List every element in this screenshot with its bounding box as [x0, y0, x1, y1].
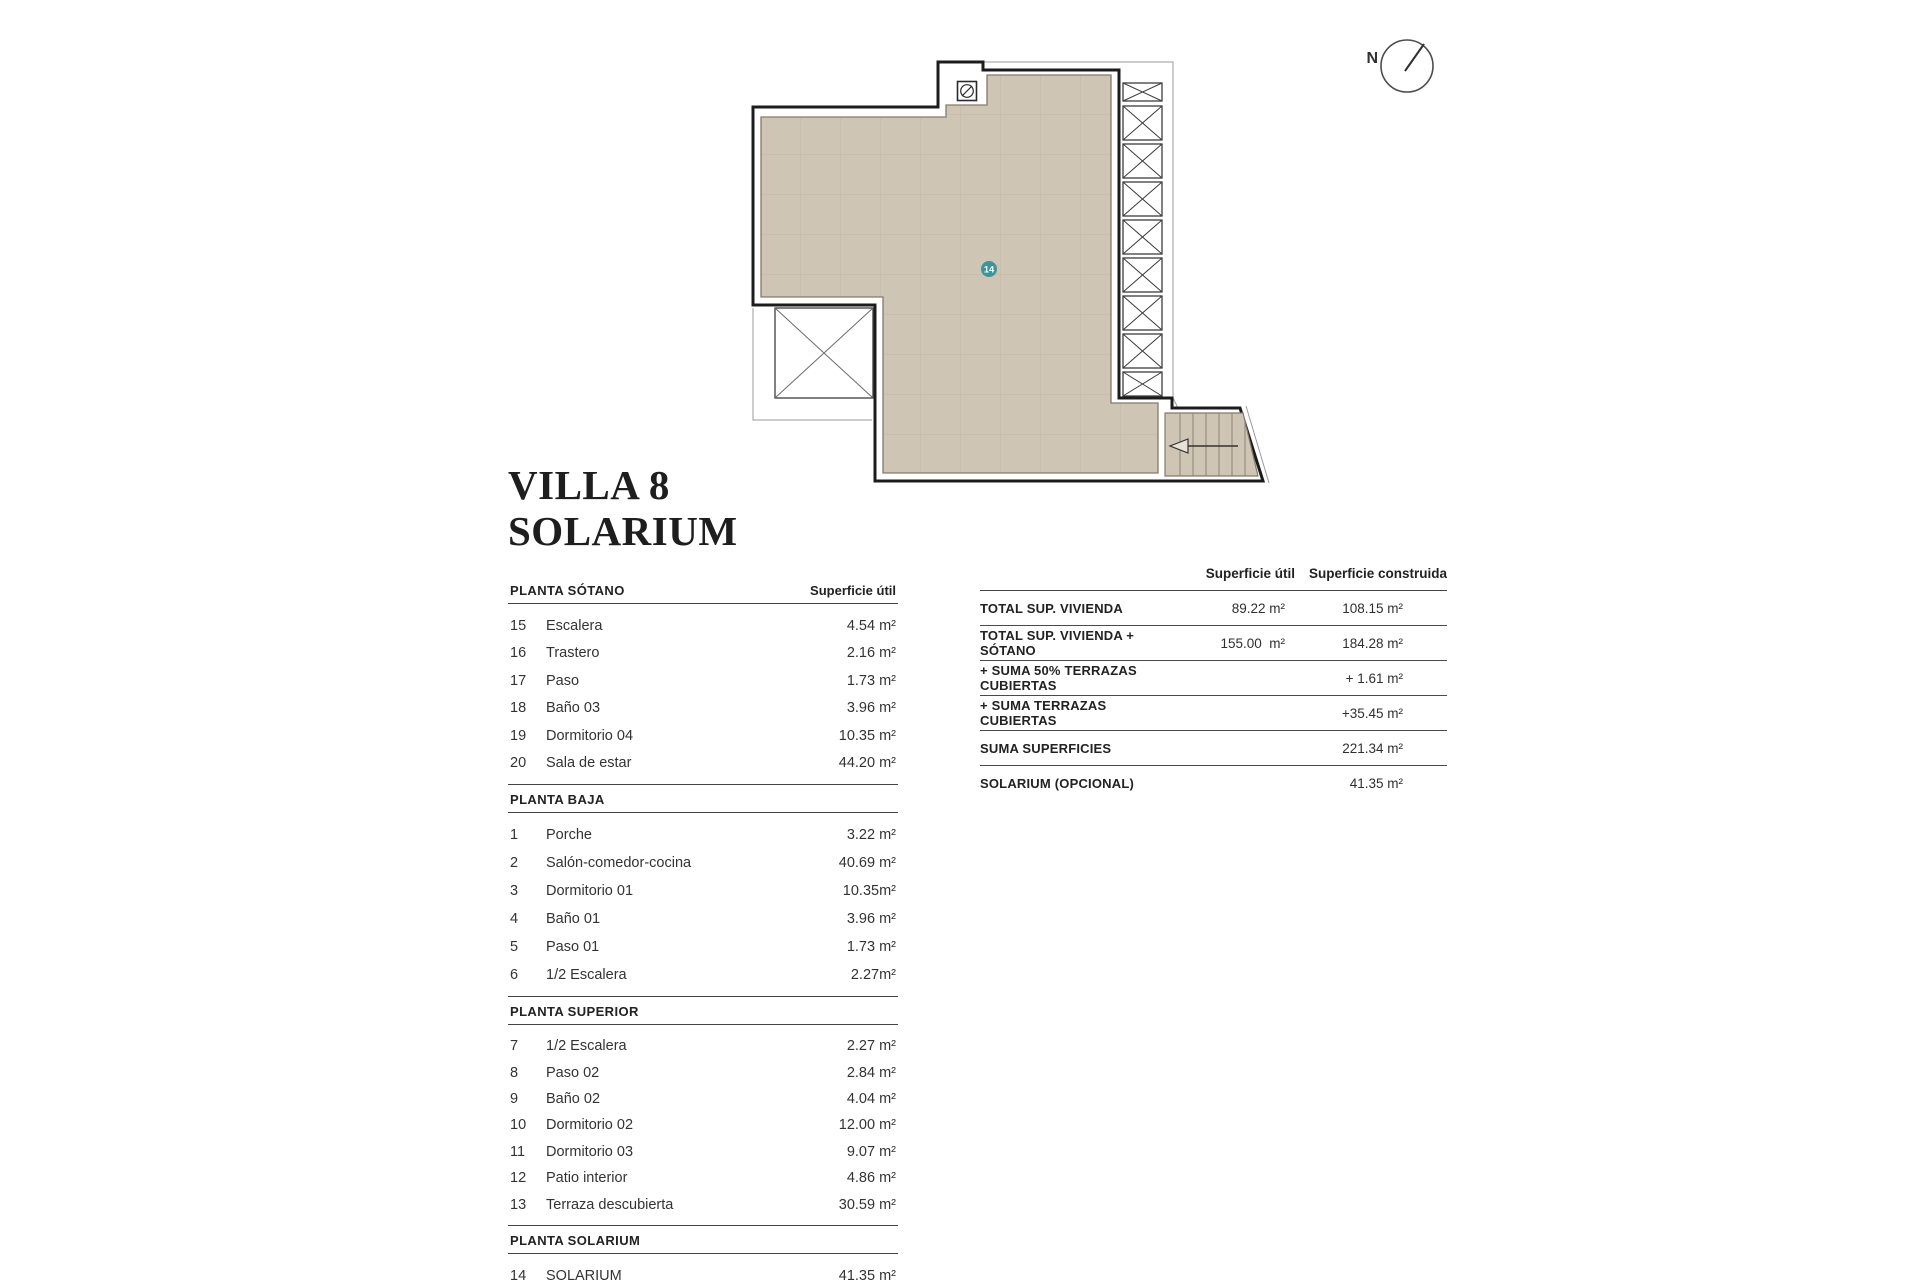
- summary-label: TOTAL SUP. VIVIENDA: [980, 601, 1175, 616]
- room-name: Escalera: [546, 618, 847, 634]
- floor-section: PLANTA BAJA 1 Porche 3.22 m² 2 Salón-com…: [508, 785, 898, 997]
- room-number: 11: [508, 1144, 546, 1160]
- room-name: Dormitorio 04: [546, 728, 839, 744]
- summary-row: SUMA SUPERFICIES 221.34 m²: [980, 731, 1447, 766]
- room-row: 3 Dormitorio 01 10.35m²: [508, 877, 898, 905]
- summary-row: TOTAL SUP. VIVIENDA + SÓTANO 155.00 m² 1…: [980, 626, 1447, 661]
- floor-section-title: PLANTA SOLARIUM: [510, 1233, 640, 1248]
- room-number: 5: [508, 939, 546, 955]
- summary-header-row: Superficie útil Superficie construida: [980, 566, 1447, 591]
- skylight-void: [775, 308, 873, 398]
- room-row: 4 Baño 01 3.96 m²: [508, 905, 898, 933]
- room-name: Terraza descubierta: [546, 1197, 839, 1213]
- room-row: 18 Baño 03 3.96 m²: [508, 695, 898, 723]
- summary-row: + SUMA TERRAZAS CUBIERTAS +35.45 m²: [980, 696, 1447, 731]
- floor-section-title: PLANTA SÓTANO: [510, 583, 625, 598]
- room-number: 17: [508, 673, 546, 689]
- summary-construida-value: +35.45 m²: [1295, 706, 1447, 721]
- room-row: 2 Salón-comedor-cocina 40.69 m²: [508, 849, 898, 877]
- room-row: 12 Patio interior 4.86 m²: [508, 1165, 898, 1191]
- summary-construida-value: + 1.61 m²: [1295, 671, 1447, 686]
- room-area: 2.16 m²: [847, 645, 898, 661]
- room-number: 7: [508, 1038, 546, 1054]
- summary-util-value: 155.00 m²: [1175, 636, 1295, 651]
- room-row: 10 Dormitorio 02 12.00 m²: [508, 1112, 898, 1138]
- room-area: 4.86 m²: [847, 1170, 898, 1186]
- room-area: 3.96 m²: [847, 700, 898, 716]
- room-number: 12: [508, 1170, 546, 1186]
- summary-label: SUMA SUPERFICIES: [980, 741, 1175, 756]
- room-row: 17 Paso 1.73 m²: [508, 667, 898, 695]
- room-area: 12.00 m²: [839, 1117, 898, 1133]
- room-area: 4.04 m²: [847, 1091, 898, 1107]
- room-area: 3.96 m²: [847, 911, 898, 927]
- room-area: 2.27m²: [851, 967, 898, 983]
- summary-label: TOTAL SUP. VIVIENDA + SÓTANO: [980, 628, 1175, 658]
- room-name: Baño 02: [546, 1091, 847, 1107]
- room-number: 18: [508, 700, 546, 716]
- room-name: Patio interior: [546, 1170, 847, 1186]
- summary-label: SOLARIUM (OPCIONAL): [980, 776, 1175, 791]
- summary-construida-value: 108.15 m²: [1295, 601, 1447, 616]
- summary-label: + SUMA 50% TERRAZAS CUBIERTAS: [980, 663, 1175, 693]
- room-area: 10.35m²: [843, 883, 898, 899]
- room-area: 30.59 m²: [839, 1197, 898, 1213]
- room-row: 11 Dormitorio 03 9.07 m²: [508, 1139, 898, 1165]
- room-number: 9: [508, 1091, 546, 1107]
- stairs: [1165, 413, 1258, 476]
- room-number: 10: [508, 1117, 546, 1133]
- room-row: 9 Baño 02 4.04 m²: [508, 1086, 898, 1112]
- room-area: 2.27 m²: [847, 1038, 898, 1054]
- floor-section-header: PLANTA SÓTANO Superficie útil: [508, 576, 898, 604]
- room-badge-number: 14: [984, 265, 995, 276]
- room-name: Trastero: [546, 645, 847, 661]
- floor-section-header: PLANTA BAJA: [508, 785, 898, 813]
- room-number: 6: [508, 967, 546, 983]
- room-area: 9.07 m²: [847, 1144, 898, 1160]
- room-row: 19 Dormitorio 04 10.35 m²: [508, 722, 898, 750]
- room-row: 14 SOLARIUM 41.35 m²: [508, 1262, 898, 1280]
- room-number: 14: [508, 1268, 546, 1280]
- room-number: 1: [508, 827, 546, 843]
- summary-row: + SUMA 50% TERRAZAS CUBIERTAS + 1.61 m²: [980, 661, 1447, 696]
- room-name: Paso 01: [546, 939, 847, 955]
- room-name: Dormitorio 02: [546, 1117, 839, 1133]
- room-area: 40.69 m²: [839, 855, 898, 871]
- room-badge: 14: [981, 261, 997, 277]
- room-name: Paso: [546, 673, 847, 689]
- north-compass-icon: N: [1366, 40, 1433, 92]
- pergola-beams: [1123, 83, 1162, 396]
- room-row: 13 Terraza descubierta 30.59 m²: [508, 1191, 898, 1217]
- floor-section-header: PLANTA SOLARIUM: [508, 1226, 898, 1254]
- room-row: 8 Paso 02 2.84 m²: [508, 1059, 898, 1085]
- summary-construida-value: 184.28 m²: [1295, 636, 1447, 651]
- summary-row: TOTAL SUP. VIVIENDA 89.22 m² 108.15 m²: [980, 591, 1447, 626]
- floor-section-header: PLANTA SUPERIOR: [508, 997, 898, 1025]
- room-area: 44.20 m²: [839, 755, 898, 771]
- plan-sheet: 14 N VILLA 8SOLARIUM PLANTA SÓTANO Super…: [0, 0, 1920, 1280]
- room-number: 19: [508, 728, 546, 744]
- north-label: N: [1366, 50, 1378, 67]
- left-column: VILLA 8SOLARIUM PLANTA SÓTANO Superficie…: [508, 462, 898, 1280]
- room-name: 1/2 Escalera: [546, 967, 851, 983]
- room-area: 10.35 m²: [839, 728, 898, 744]
- room-name: Porche: [546, 827, 847, 843]
- room-area: 2.84 m²: [847, 1065, 898, 1081]
- floor-section: PLANTA SUPERIOR 7 1/2 Escalera 2.27 m² 8…: [508, 997, 898, 1226]
- title-line-1: VILLA 8: [508, 462, 670, 508]
- room-name: Dormitorio 01: [546, 883, 843, 899]
- room-area: 4.54 m²: [847, 618, 898, 634]
- summary-table: Superficie útil Superficie construida TO…: [980, 566, 1447, 800]
- floor-section: PLANTA SOLARIUM 14 SOLARIUM 41.35 m²: [508, 1226, 898, 1280]
- solarium-floor: [761, 75, 1158, 473]
- room-number: 2: [508, 855, 546, 871]
- room-number: 16: [508, 645, 546, 661]
- room-name: Salón-comedor-cocina: [546, 855, 839, 871]
- room-name: Baño 01: [546, 911, 847, 927]
- area-schedule: PLANTA SÓTANO Superficie útil 15 Escaler…: [508, 576, 898, 1280]
- room-area: 3.22 m²: [847, 827, 898, 843]
- room-row: 5 Paso 01 1.73 m²: [508, 933, 898, 961]
- room-name: 1/2 Escalera: [546, 1038, 847, 1054]
- floor-plan-drawing: 14 N: [740, 20, 1460, 520]
- room-name: Paso 02: [546, 1065, 847, 1081]
- room-row: 7 1/2 Escalera 2.27 m²: [508, 1033, 898, 1059]
- room-number: 15: [508, 618, 546, 634]
- summary-construida-value: 41.35 m²: [1295, 776, 1447, 791]
- summary-util-value: 89.22 m²: [1175, 601, 1295, 616]
- room-row: 6 1/2 Escalera 2.27m²: [508, 961, 898, 989]
- room-number: 4: [508, 911, 546, 927]
- floor-section-title: PLANTA BAJA: [510, 792, 605, 807]
- room-number: 13: [508, 1197, 546, 1213]
- summary-row: SOLARIUM (OPCIONAL) 41.35 m²: [980, 766, 1447, 800]
- page-title: VILLA 8SOLARIUM: [508, 462, 898, 554]
- room-row: 16 Trastero 2.16 m²: [508, 640, 898, 668]
- room-name: SOLARIUM: [546, 1268, 839, 1280]
- room-row: 15 Escalera 4.54 m²: [508, 612, 898, 640]
- room-name: Sala de estar: [546, 755, 839, 771]
- room-area: 41.35 m²: [839, 1268, 898, 1280]
- summary-label: + SUMA TERRAZAS CUBIERTAS: [980, 698, 1175, 728]
- room-name: Baño 03: [546, 700, 847, 716]
- room-number: 3: [508, 883, 546, 899]
- room-name: Dormitorio 03: [546, 1144, 847, 1160]
- room-row: 1 Porche 3.22 m²: [508, 821, 898, 849]
- drain-icon: [958, 82, 977, 101]
- room-number: 8: [508, 1065, 546, 1081]
- room-row: 20 Sala de estar 44.20 m²: [508, 750, 898, 778]
- room-area: 1.73 m²: [847, 673, 898, 689]
- room-number: 20: [508, 755, 546, 771]
- room-area: 1.73 m²: [847, 939, 898, 955]
- summary-col1-header: Superficie útil: [1175, 566, 1295, 581]
- summary-construida-value: 221.34 m²: [1295, 741, 1447, 756]
- floor-section: PLANTA SÓTANO Superficie útil 15 Escaler…: [508, 576, 898, 785]
- title-line-2: SOLARIUM: [508, 508, 738, 554]
- area-column-header: Superficie útil: [810, 583, 898, 598]
- summary-col2-header: Superficie construida: [1295, 566, 1447, 581]
- floor-section-title: PLANTA SUPERIOR: [510, 1004, 639, 1019]
